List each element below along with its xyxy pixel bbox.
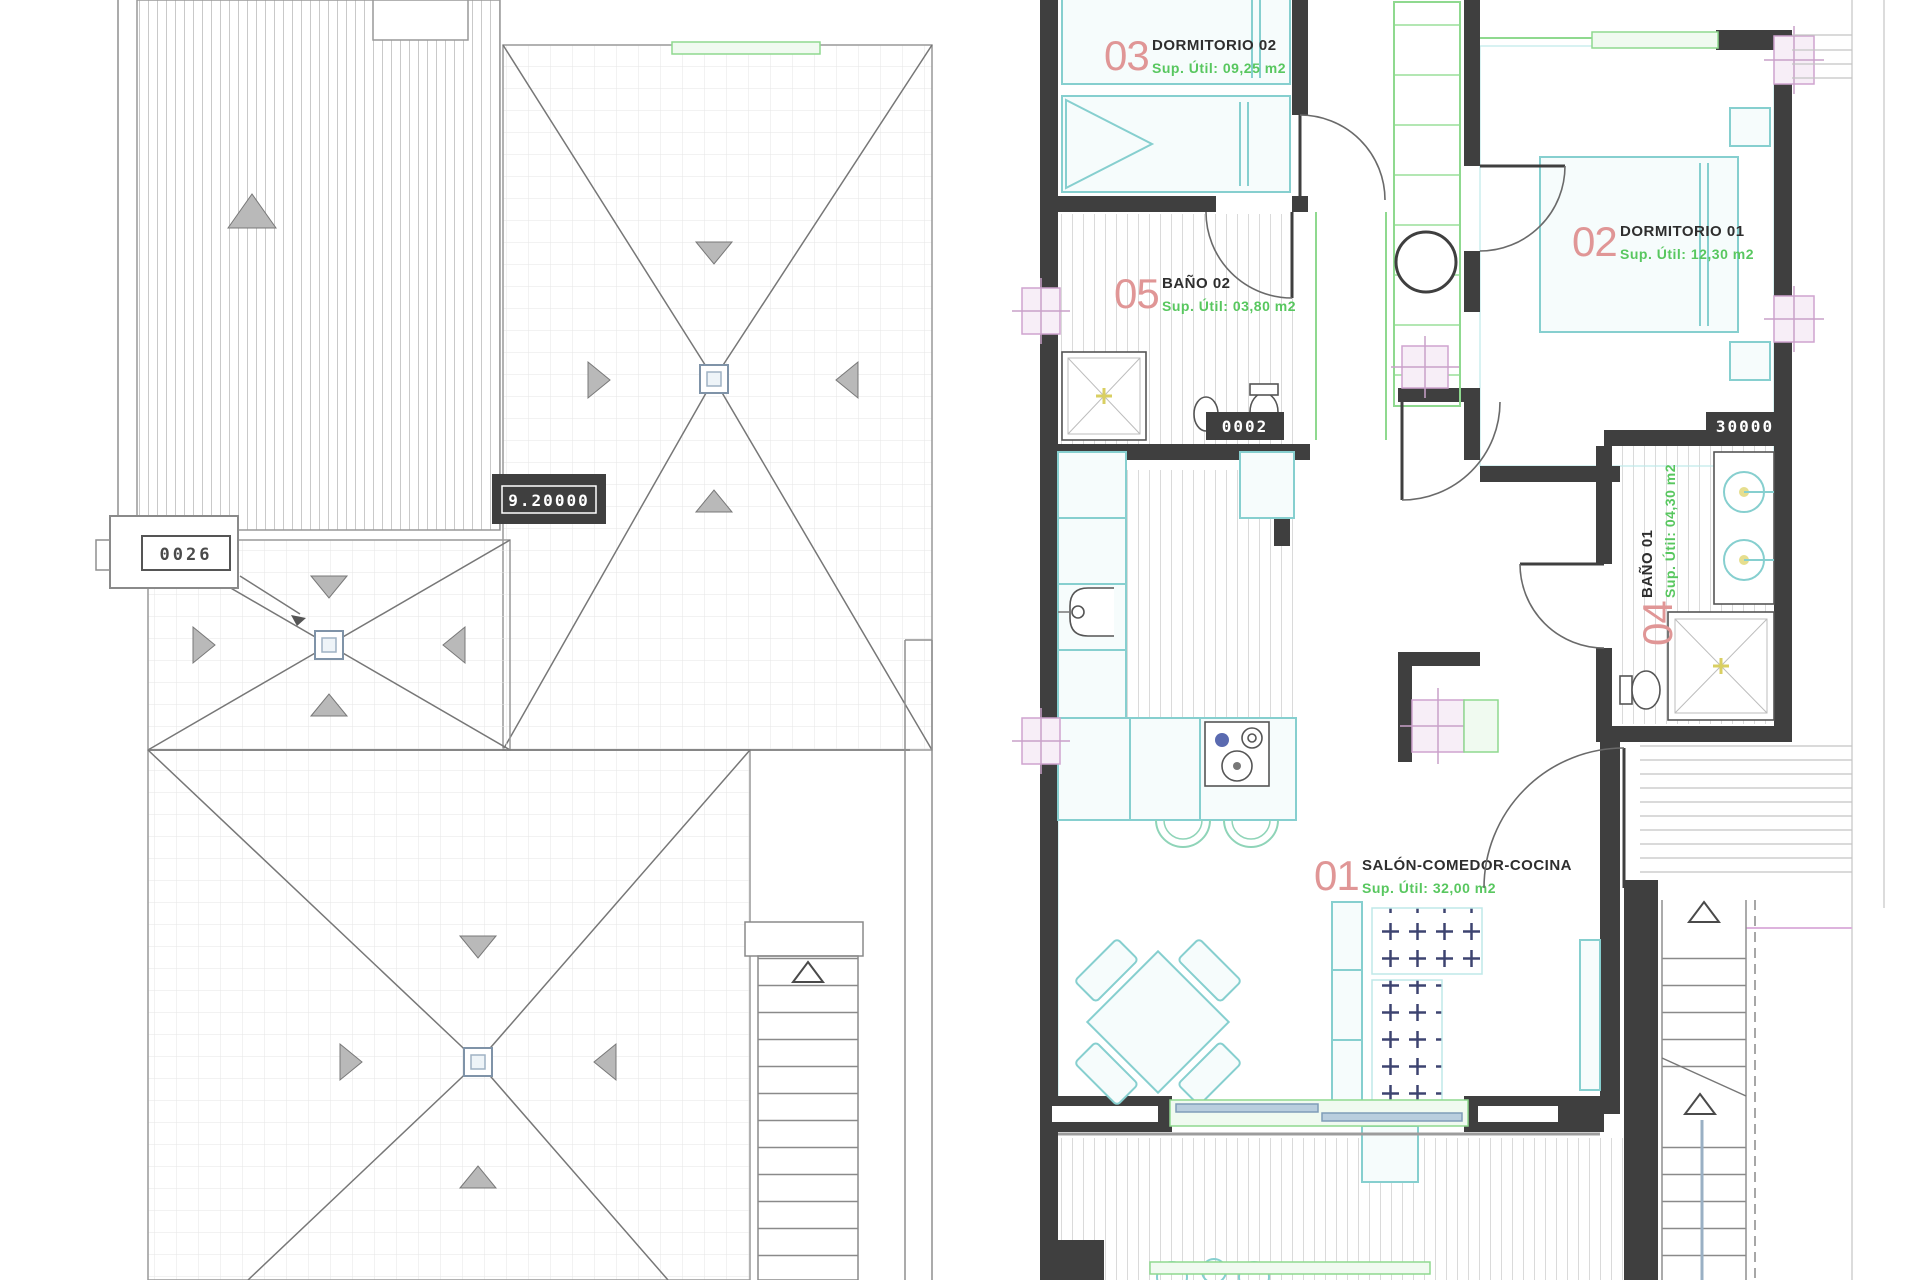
cad-drawing: 0026 9.20000: [0, 0, 1920, 1280]
room-number: 01: [1314, 852, 1359, 899]
room-number: 03: [1104, 32, 1149, 79]
roof-plate-badge: 9.20000: [492, 474, 606, 524]
window-tag-bath2: 0002: [1206, 412, 1284, 440]
room-number: 02: [1572, 218, 1617, 265]
hallway: [1391, 2, 1460, 406]
roof-plate-label: 9.20000: [508, 491, 589, 510]
floorplan-sheet: 0026 9.20000: [0, 0, 1920, 1280]
nightstand: [1730, 108, 1770, 146]
bedroom-02: 03 DORMITORIO 02 Sup. Útil: 09,25 m2: [1062, 0, 1290, 192]
stair-flight: [1662, 1128, 1746, 1280]
bedroom-01: 02 DORMITORIO 01 Sup. Útil: 12,30 m2: [1480, 32, 1770, 380]
laundry-niche: [1400, 688, 1498, 764]
floor-plan: 03 DORMITORIO 02 Sup. Útil: 09,25 m2 05 …: [1012, 0, 1884, 1280]
burner-icon: [1215, 733, 1229, 747]
tv-bench: [1580, 940, 1600, 1090]
room-number: 05: [1114, 270, 1159, 317]
wall-window-slot: [1478, 1106, 1558, 1122]
rug: [1372, 980, 1442, 1102]
terrace-floor: [1058, 1138, 1624, 1280]
room-name: BAÑO 02: [1162, 274, 1231, 292]
wall-window-slot: [1052, 1106, 1158, 1122]
window-tag-label: 30000: [1716, 417, 1774, 436]
rug: [1372, 908, 1482, 974]
exterior-stairs: [1662, 900, 1755, 1280]
roof-ref-label: 0026: [160, 545, 213, 565]
bedroom-window: [1592, 32, 1718, 48]
column: [1396, 232, 1456, 292]
vanity-sinks: [1714, 452, 1774, 604]
room-name: DORMITORIO 02: [1152, 37, 1277, 54]
room-label-salon: 01 SALÓN-COMEDOR-COCINA Sup. Útil: 32,00…: [1314, 852, 1572, 899]
roof-notch: [373, 0, 468, 40]
room-name: BAÑO 01: [1638, 529, 1656, 598]
toilet: [1632, 671, 1660, 709]
roof-section-b: [503, 42, 932, 750]
room-area: Sup. Útil: 32,00 m2: [1362, 879, 1496, 896]
skylight-window: [672, 42, 820, 54]
door-arc: [1300, 115, 1385, 200]
fridge: [1240, 452, 1294, 518]
door-arc: [1520, 564, 1604, 648]
living-kitchen: 01 SALÓN-COMEDOR-COCINA Sup. Útil: 32,00…: [1034, 452, 1600, 1182]
nightstand: [1730, 342, 1770, 380]
cooktop: [1205, 722, 1269, 786]
room-name: SALÓN-COMEDOR-COCINA: [1362, 856, 1572, 874]
roof-hatched-section: [137, 0, 500, 530]
room-number: 04: [1634, 601, 1681, 646]
room-area: Sup. Útil: 09,25 m2: [1152, 59, 1286, 76]
lower-window: [1150, 1262, 1430, 1274]
stair-direction-icon: [1685, 1094, 1715, 1114]
sofa: [1332, 902, 1362, 1108]
hall-finish-line: [1316, 212, 1386, 440]
window-tag-label: 0002: [1222, 417, 1269, 436]
room-area: Sup. Útil: 12,30 m2: [1620, 245, 1754, 262]
door-arc: [1402, 402, 1500, 500]
stair-flight: [1662, 938, 1746, 1090]
window-pane: [1322, 1113, 1462, 1121]
kitchen-counter: [1058, 452, 1126, 518]
window-pane: [1176, 1104, 1318, 1112]
room-area: Sup. Útil: 04,30 m2: [1661, 464, 1678, 598]
stair-direction-icon: [1689, 902, 1719, 922]
roof-plan: 0026 9.20000: [96, 0, 932, 1280]
room-name: DORMITORIO 01: [1620, 223, 1745, 240]
window-tag-bath1: 30000: [1706, 412, 1784, 440]
single-bed: [1062, 96, 1290, 192]
room-area: Sup. Útil: 03,80 m2: [1162, 297, 1296, 314]
